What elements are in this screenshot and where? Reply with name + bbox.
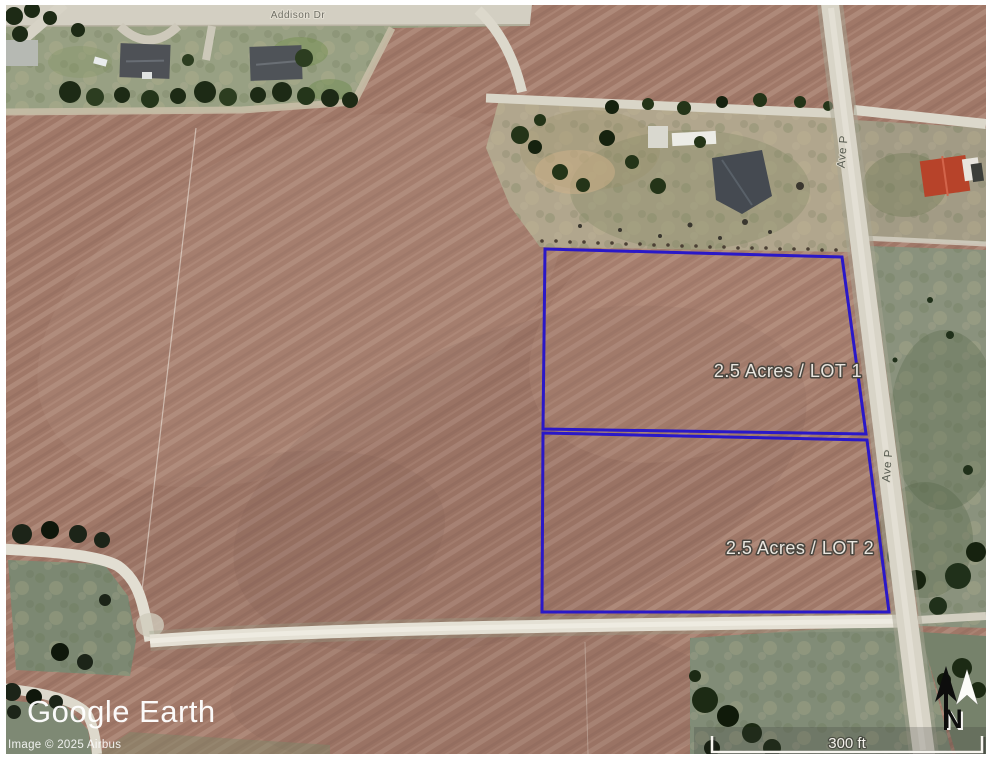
scale-bar: 300 ft: [694, 727, 986, 756]
scale-bar-label: 300 ft: [828, 735, 866, 752]
listing-photo: Addison Dr: [0, 0, 994, 768]
house-roof: [249, 45, 302, 81]
lot-2-label: 2.5 Acres / LOT 2: [726, 538, 874, 558]
rv-trailer: [672, 131, 717, 146]
north-label: N: [943, 704, 963, 734]
pasture-north: [486, 93, 850, 252]
street-label-addison: Addison Dr: [271, 10, 326, 21]
addison-dr-road: [6, 4, 532, 26]
google-earth-logo: Google Earth: [27, 694, 216, 729]
lot-1-label: 2.5 Acres / LOT 1: [714, 361, 862, 381]
imagery-copyright: Image © 2025 Airbus: [8, 739, 121, 751]
house-roof: [6, 40, 38, 66]
